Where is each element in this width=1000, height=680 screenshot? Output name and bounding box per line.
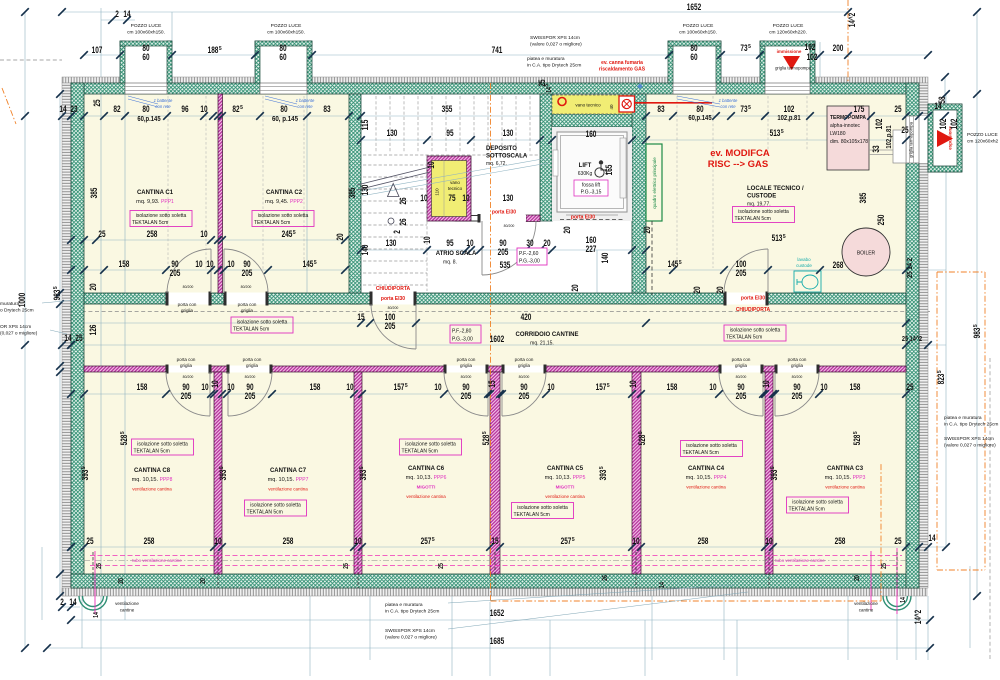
svg-text:ev. canna fumaria: ev. canna fumaria	[601, 60, 643, 66]
svg-text:102,p.81: 102,p.81	[777, 115, 800, 122]
svg-text:110: 110	[435, 188, 440, 196]
svg-text:ventilazione cantina: ventilazione cantina	[268, 487, 308, 492]
svg-text:porta con: porta con	[243, 357, 262, 362]
svg-text:5: 5	[572, 537, 575, 543]
svg-text:83: 83	[657, 104, 664, 114]
svg-text:95: 95	[446, 238, 453, 248]
svg-text:528: 528	[637, 435, 647, 446]
svg-text:isolazione sotto soletta: isolazione sotto soletta	[730, 328, 781, 334]
svg-text:102: 102	[874, 119, 884, 130]
svg-text:14: 14	[928, 533, 935, 543]
svg-text:60,p.145: 60,p.145	[137, 116, 160, 123]
svg-text:isolazione sotto soletta: isolazione sotto soletta	[136, 213, 187, 219]
svg-text:5: 5	[770, 466, 776, 469]
svg-text:TEKTALAN 5cm: TEKTALAN 5cm	[789, 507, 825, 513]
svg-text:isolazione sotto soletta: isolazione sotto soletta	[237, 320, 288, 326]
svg-text:528: 528	[852, 435, 862, 446]
svg-text:80/200: 80/200	[241, 285, 252, 289]
svg-text:5: 5	[783, 234, 786, 240]
svg-text:mq. 21,15.: mq. 21,15.	[530, 341, 554, 347]
svg-text:CANTINA C5: CANTINA C5	[547, 466, 584, 472]
svg-text:5: 5	[219, 46, 222, 52]
svg-text:80: 80	[280, 104, 287, 114]
svg-text:BOILER: BOILER	[857, 251, 876, 257]
svg-text:mq. 10,15. PPP3: mq. 10,15. PPP3	[825, 475, 866, 481]
svg-text:385: 385	[347, 188, 357, 199]
svg-text:258: 258	[835, 536, 846, 546]
svg-text:25: 25	[343, 563, 350, 569]
svg-text:5: 5	[405, 383, 408, 389]
svg-text:TEKTALAN 5cm: TEKTALAN 5cm	[683, 450, 719, 456]
svg-text:205: 205	[461, 391, 472, 401]
svg-text:102: 102	[807, 52, 818, 62]
svg-text:lavabo: lavabo	[797, 257, 811, 262]
svg-text:20: 20	[562, 226, 572, 233]
svg-text:tubo ventilazione cantine: tubo ventilazione cantine	[132, 558, 182, 563]
svg-text:102: 102	[805, 42, 816, 52]
svg-text:cm 100x60xh150.: cm 100x60xh150.	[679, 30, 717, 36]
svg-text:5: 5	[544, 84, 550, 87]
svg-text:227: 227	[586, 244, 597, 254]
svg-text:102,p.81: 102,p.81	[886, 125, 893, 148]
svg-text:205: 205	[736, 268, 747, 278]
svg-text:10: 10	[420, 193, 427, 203]
svg-text:cantine: cantine	[120, 608, 135, 613]
svg-text:P.F.-2,80: P.F.-2,80	[452, 329, 472, 335]
svg-text:porta con: porta con	[732, 357, 751, 362]
svg-text:tubo ventilazione cantine: tubo ventilazione cantine	[775, 558, 825, 563]
svg-text:165: 165	[604, 165, 614, 176]
svg-text:1652: 1652	[490, 608, 504, 618]
svg-text:immissione: immissione	[777, 49, 802, 54]
svg-text:80/200: 80/200	[461, 375, 472, 379]
svg-text:10: 10	[765, 536, 772, 546]
svg-text:258: 258	[147, 229, 158, 239]
svg-text:80/200: 80/200	[183, 285, 194, 289]
svg-text:alpha-innotec: alpha-innotec	[830, 123, 861, 129]
svg-text:10: 10	[466, 238, 473, 248]
svg-text:823: 823	[936, 374, 946, 385]
svg-text:205: 205	[792, 391, 803, 401]
svg-text:393: 393	[80, 470, 90, 481]
svg-text:20: 20	[335, 233, 345, 240]
svg-text:porta con: porta con	[515, 357, 534, 362]
svg-text:158: 158	[119, 259, 130, 269]
svg-text:630Kg: 630Kg	[578, 171, 593, 177]
svg-text:14: 14	[546, 87, 553, 93]
svg-text:393: 393	[769, 470, 779, 481]
svg-text:160: 160	[586, 129, 597, 139]
svg-text:107: 107	[92, 45, 103, 55]
svg-text:20: 20	[642, 226, 652, 233]
svg-text:porta EI30: porta EI30	[571, 215, 595, 221]
svg-text:15: 15	[491, 536, 498, 546]
svg-text:ventilazione: ventilazione	[854, 601, 878, 606]
svg-text:1 battente: 1 battente	[154, 98, 173, 103]
svg-text:ATRIO SCALA: ATRIO SCALA	[436, 251, 477, 257]
svg-text:25 14^2: 25 14^2	[902, 335, 922, 343]
svg-text:POZZO LUCE: POZZO LUCE	[773, 23, 804, 29]
svg-text:14: 14	[59, 104, 66, 114]
svg-text:griglia: griglia	[460, 363, 473, 368]
svg-text:con rete: con rete	[297, 104, 313, 109]
svg-text:mq. 10,15. PPP4: mq. 10,15. PPP4	[686, 475, 727, 481]
svg-text:5: 5	[781, 129, 784, 135]
svg-text:CANTINA C3: CANTINA C3	[827, 466, 864, 472]
svg-text:130: 130	[360, 185, 370, 196]
svg-text:140: 140	[360, 245, 370, 256]
svg-text:23: 23	[70, 104, 77, 114]
svg-text:25: 25	[901, 125, 908, 135]
svg-text:CHIUDIPORTA: CHIUDIPORTA	[376, 286, 411, 292]
svg-text:1685: 1685	[490, 636, 504, 646]
svg-text:mq. 10,13. PPP6: mq. 10,13. PPP6	[406, 475, 447, 481]
svg-text:5: 5	[432, 537, 435, 543]
svg-text:14: 14	[659, 582, 666, 588]
svg-text:420: 420	[521, 312, 532, 322]
svg-text:in C.A. tipo Drytech 25cm: in C.A. tipo Drytech 25cm	[385, 609, 439, 615]
svg-text:1602: 1602	[490, 334, 504, 344]
svg-text:MIGOTTI: MIGOTTI	[556, 485, 575, 490]
svg-text:CANTINA C7: CANTINA C7	[270, 468, 307, 474]
svg-text:griglia: griglia	[246, 363, 259, 368]
svg-text:in C.A. tipo Drytech 25cm: in C.A. tipo Drytech 25cm	[527, 63, 581, 69]
svg-text:TEKTALAN 5cm: TEKTALAN 5cm	[726, 335, 762, 341]
svg-text:2: 2	[115, 9, 119, 19]
svg-text:83: 83	[323, 104, 330, 114]
svg-text:2: 2	[60, 597, 64, 607]
svg-text:o Drytech 25cm: o Drytech 25cm	[0, 308, 34, 314]
svg-text:14: 14	[900, 597, 907, 603]
svg-text:piatea e muratura: piatea e muratura	[385, 602, 423, 608]
svg-text:riscaldamento GAS: riscaldamento GAS	[599, 67, 646, 73]
svg-text:102: 102	[938, 119, 948, 130]
svg-text:26: 26	[398, 218, 408, 225]
svg-text:385: 385	[858, 193, 868, 204]
svg-text:in C.A. tipo Drytech 25cm: in C.A. tipo Drytech 25cm	[944, 422, 998, 428]
svg-text:P.G.-3,00: P.G.-3,00	[452, 337, 473, 343]
svg-text:205: 205	[170, 268, 181, 278]
svg-text:10: 10	[709, 382, 716, 392]
svg-text:DEPOSITO: DEPOSITO	[486, 146, 517, 152]
svg-text:188: 188	[208, 45, 219, 55]
svg-text:CUSTODE: CUSTODE	[747, 194, 776, 200]
svg-text:14: 14	[69, 597, 76, 607]
svg-text:102: 102	[949, 119, 959, 130]
svg-text:5: 5	[607, 383, 610, 389]
svg-text:ventilazione cantina: ventilazione cantina	[825, 485, 865, 490]
svg-text:26: 26	[602, 575, 609, 581]
svg-text:griglia: griglia	[735, 363, 748, 368]
svg-text:80: 80	[142, 104, 149, 114]
svg-text:10: 10	[210, 380, 220, 387]
svg-text:CANTINA C2: CANTINA C2	[266, 190, 303, 196]
svg-text:TEKTALAN 5cm: TEKTALAN 5cm	[514, 512, 550, 518]
svg-text:TEKTALAN 5cm: TEKTALAN 5cm	[402, 449, 438, 455]
svg-text:158: 158	[667, 382, 678, 392]
svg-text:60,p.145: 60,p.145	[688, 115, 711, 122]
svg-text:14^2: 14^2	[913, 610, 923, 624]
svg-text:25 14 2: 25 14 2	[907, 258, 914, 278]
svg-text:10: 10	[632, 536, 639, 546]
svg-text:25: 25	[98, 229, 105, 239]
svg-text:vano tecnico: vano tecnico	[575, 103, 601, 108]
svg-text:10: 10	[227, 259, 234, 269]
svg-text:SWISSPOR XPS 14cm: SWISSPOR XPS 14cm	[944, 436, 994, 442]
svg-text:80/200: 80/200	[245, 375, 256, 379]
svg-text:257: 257	[421, 536, 432, 546]
svg-text:POZZO LUCE: POZZO LUCE	[967, 132, 998, 138]
svg-text:82: 82	[232, 104, 239, 114]
svg-text:10: 10	[434, 382, 441, 392]
svg-text:quadro elettrico principale: quadro elettrico principale	[652, 157, 657, 209]
svg-text:2: 2	[392, 230, 402, 234]
svg-text:con rete: con rete	[720, 104, 736, 109]
svg-text:isolazione sotto soletta: isolazione sotto soletta	[405, 442, 456, 448]
svg-text:33: 33	[871, 145, 881, 152]
svg-text:258: 258	[283, 536, 294, 546]
svg-text:10: 10	[206, 259, 213, 269]
svg-text:80/200: 80/200	[792, 375, 803, 379]
svg-text:528: 528	[481, 435, 491, 446]
svg-text:130: 130	[387, 128, 398, 138]
svg-text:25: 25	[96, 563, 103, 569]
svg-text:5: 5	[638, 431, 644, 434]
svg-text:10: 10	[201, 382, 208, 392]
svg-text:5: 5	[240, 105, 243, 111]
svg-text:piatea e muratura: piatea e muratura	[944, 415, 982, 421]
svg-text:10: 10	[227, 382, 234, 392]
svg-text:741: 741	[492, 45, 503, 55]
svg-text:158: 158	[137, 382, 148, 392]
svg-text:102: 102	[784, 104, 795, 114]
svg-text:1000: 1000	[17, 293, 27, 307]
svg-text:piatea e muratura: piatea e muratura	[527, 56, 565, 62]
svg-text:dim. 80x105x178: dim. 80x105x178	[830, 139, 868, 145]
svg-text:SWISSPOR XPS 14cm: SWISSPOR XPS 14cm	[530, 35, 580, 41]
svg-text:SWISSPOR XPS 14cm: SWISSPOR XPS 14cm	[385, 628, 435, 634]
svg-text:60, p.145: 60, p.145	[272, 116, 298, 123]
svg-text:205: 205	[242, 268, 253, 278]
svg-text:TEKTALAN 5cm: TEKTALAN 5cm	[132, 220, 168, 226]
svg-text:82: 82	[113, 104, 120, 114]
svg-text:60: 60	[279, 52, 286, 62]
svg-text:CORRIDOIO CANTINE: CORRIDOIO CANTINE	[516, 332, 579, 338]
svg-text:10: 10	[628, 380, 638, 387]
svg-text:25: 25	[75, 333, 82, 343]
svg-text:80/200: 80/200	[504, 224, 515, 228]
svg-text:983: 983	[972, 328, 982, 339]
svg-text:isolazione sotto soletta: isolazione sotto soletta	[250, 503, 301, 509]
svg-text:cm 100x60xh150.: cm 100x60xh150.	[267, 30, 305, 36]
svg-text:25: 25	[92, 99, 102, 106]
svg-text:CHIUDIPORTA: CHIUDIPORTA	[736, 307, 771, 313]
svg-text:5: 5	[748, 105, 751, 111]
svg-text:25: 25	[906, 382, 913, 392]
svg-text:10: 10	[426, 161, 436, 168]
svg-text:5: 5	[219, 466, 225, 469]
svg-text:porta con: porta con	[177, 357, 196, 362]
svg-text:isolazione sotto soletta: isolazione sotto soletta	[792, 500, 843, 506]
svg-text:95: 95	[446, 128, 453, 138]
svg-text:POZZO LUCE: POZZO LUCE	[271, 23, 302, 29]
svg-text:(valore 0,027 o migliore): (valore 0,027 o migliore)	[530, 42, 582, 48]
svg-text:griglia: griglia	[180, 363, 193, 368]
svg-text:P.F.-2,60: P.F.-2,60	[519, 251, 539, 257]
svg-text:vano: vano	[450, 180, 460, 185]
svg-text:RISC --> GAS: RISC --> GAS	[708, 159, 768, 170]
svg-text:mq. 6,72.: mq. 6,72.	[486, 161, 507, 167]
svg-text:20: 20	[88, 283, 98, 290]
svg-text:60: 60	[690, 52, 697, 62]
svg-text:TEKTALAN 5cm: TEKTALAN 5cm	[254, 220, 290, 226]
svg-text:griglia: griglia	[791, 363, 804, 368]
svg-text:80/200: 80/200	[519, 375, 530, 379]
svg-text:157: 157	[394, 382, 405, 392]
svg-text:10: 10	[354, 536, 361, 546]
svg-text:145: 145	[303, 259, 314, 269]
svg-text:20: 20	[692, 286, 702, 293]
svg-text:porta con: porta con	[238, 302, 257, 307]
svg-text:cantine: cantine	[859, 608, 874, 613]
svg-text:(valore 0,027 o migliore): (valore 0,027 o migliore)	[944, 443, 996, 449]
svg-text:5: 5	[81, 466, 87, 469]
svg-text:griglia: griglia	[518, 363, 531, 368]
svg-text:TEKTALAN 5cm: TEKTALAN 5cm	[233, 327, 269, 333]
svg-text:griglia: griglia	[181, 308, 194, 313]
svg-text:14: 14	[93, 612, 100, 618]
svg-text:ventilazione cantina: ventilazione cantina	[545, 494, 585, 499]
svg-text:15: 15	[487, 380, 497, 387]
svg-text:80/200: 80/200	[388, 306, 399, 310]
svg-text:5: 5	[293, 230, 296, 236]
svg-text:10: 10	[195, 259, 202, 269]
svg-text:griglia termopompa: griglia termopompa	[775, 66, 812, 71]
svg-text:porta EI30: porta EI30	[492, 210, 516, 216]
svg-text:mq. 9,45. PPP2: mq. 9,45. PPP2	[265, 199, 303, 205]
svg-text:porta con: porta con	[788, 357, 807, 362]
svg-text:ev. MODIFCA: ev. MODIFCA	[710, 148, 770, 159]
svg-text:258: 258	[698, 536, 709, 546]
svg-text:10: 10	[761, 380, 771, 387]
svg-text:LW180: LW180	[830, 131, 846, 137]
svg-text:26: 26	[398, 197, 408, 204]
svg-text:porta EI30: porta EI30	[381, 296, 405, 302]
svg-text:isolazione sotto soletta: isolazione sotto soletta	[137, 442, 188, 448]
svg-text:porta con: porta con	[457, 357, 476, 362]
svg-text:5: 5	[679, 260, 682, 266]
svg-text:griglia: griglia	[241, 308, 254, 313]
svg-text:SOTTOSCALA: SOTTOSCALA	[486, 154, 528, 160]
svg-text:205: 205	[736, 391, 747, 401]
svg-text:10: 10	[422, 236, 432, 243]
svg-text:115: 115	[360, 120, 370, 131]
svg-text:14: 14	[64, 333, 71, 343]
svg-text:80/200: 80/200	[736, 375, 747, 379]
svg-text:130: 130	[503, 193, 514, 203]
svg-text:80: 80	[696, 104, 703, 114]
svg-text:983: 983	[52, 290, 62, 301]
svg-text:5: 5	[853, 431, 859, 434]
svg-text:MIGOTTI: MIGOTTI	[417, 485, 436, 490]
svg-text:1 battente: 1 battente	[296, 98, 315, 103]
svg-text:ventilazione: ventilazione	[115, 601, 139, 606]
svg-text:355: 355	[442, 104, 453, 114]
svg-text:157: 157	[596, 382, 607, 392]
svg-text:mq. 19,77.: mq. 19,77.	[747, 202, 771, 208]
svg-text:75: 75	[448, 193, 455, 203]
svg-text:80/200: 80/200	[183, 375, 194, 379]
svg-text:205: 205	[498, 247, 509, 257]
svg-text:isolazione sotto soletta: isolazione sotto soletta	[738, 209, 789, 215]
svg-text:isolazione sotto soletta: isolazione sotto soletta	[686, 443, 737, 449]
svg-text:175: 175	[854, 104, 865, 114]
svg-text:POZZO LUCE: POZZO LUCE	[683, 23, 714, 29]
svg-text:15: 15	[357, 312, 364, 322]
svg-text:245: 245	[282, 229, 293, 239]
svg-text:130: 130	[503, 128, 514, 138]
svg-text:LOCALE TECNICO /: LOCALE TECNICO /	[747, 186, 804, 192]
svg-text:CANTINA C6: CANTINA C6	[408, 466, 445, 472]
svg-text:25: 25	[438, 563, 445, 569]
svg-text:P.G.-3,15: P.G.-3,15	[581, 190, 602, 196]
svg-text:CANTINA C4: CANTINA C4	[688, 466, 725, 472]
svg-text:10: 10	[820, 382, 827, 392]
svg-text:OR XPS 14cm: OR XPS 14cm	[0, 324, 31, 330]
svg-text:P.G.-3,00: P.G.-3,00	[519, 259, 540, 265]
svg-text:TEKTALAN 5cm: TEKTALAN 5cm	[134, 449, 170, 455]
svg-text:528: 528	[119, 435, 129, 446]
svg-text:73: 73	[740, 104, 747, 114]
svg-text:257: 257	[561, 536, 572, 546]
svg-text:isolazione sotto soletta: isolazione sotto soletta	[258, 213, 309, 219]
svg-text:cm 100x60xh150.: cm 100x60xh150.	[127, 30, 165, 36]
svg-text:20: 20	[543, 238, 550, 248]
svg-text:96: 96	[181, 104, 188, 114]
svg-text:205: 205	[385, 321, 396, 331]
svg-text:5: 5	[748, 44, 751, 50]
svg-text:isolazione sotto soletta: isolazione sotto soletta	[517, 505, 568, 511]
svg-text:268: 268	[833, 260, 844, 270]
svg-text:ventilazione cantina: ventilazione cantina	[132, 487, 172, 492]
svg-text:25: 25	[894, 536, 901, 546]
svg-text:20: 20	[570, 284, 580, 291]
svg-text:158: 158	[850, 382, 861, 392]
svg-text:40: 40	[609, 104, 614, 110]
svg-text:TEKTALAN 5cm: TEKTALAN 5cm	[247, 510, 283, 516]
svg-text:mq. 10,15. PPP7: mq. 10,15. PPP7	[268, 477, 309, 483]
svg-text:20: 20	[854, 575, 861, 581]
svg-text:cm 120x60xh2: cm 120x60xh2	[967, 139, 999, 145]
svg-text:130: 130	[386, 238, 397, 248]
svg-text:porta con: porta con	[178, 302, 197, 307]
svg-text:mq. 8.: mq. 8.	[443, 260, 457, 266]
svg-text:LIFT: LIFT	[579, 163, 592, 169]
svg-text:CANTINA C1: CANTINA C1	[137, 190, 174, 196]
svg-text:(0,027 o migliore): (0,027 o migliore)	[0, 331, 38, 337]
svg-text:14: 14	[123, 9, 130, 19]
svg-text:14^2: 14^2	[847, 13, 857, 27]
svg-text:20: 20	[715, 286, 725, 293]
svg-text:20: 20	[118, 578, 125, 584]
svg-text:5: 5	[359, 466, 365, 469]
svg-text:5: 5	[937, 370, 943, 373]
svg-text:30: 30	[526, 238, 533, 248]
svg-text:5: 5	[120, 431, 126, 434]
svg-text:60: 60	[142, 52, 149, 62]
svg-text:1652: 1652	[687, 2, 701, 12]
svg-text:73: 73	[740, 43, 747, 53]
